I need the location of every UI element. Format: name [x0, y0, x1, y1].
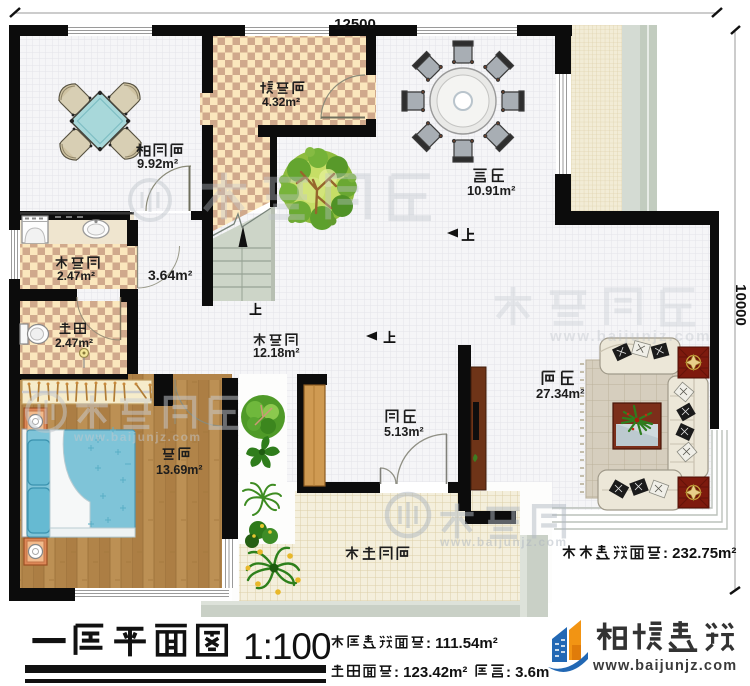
svg-text:3.64m²: 3.64m²	[148, 267, 193, 283]
svg-text:27.34m²: 27.34m²	[536, 386, 585, 401]
svg-text:www.baijunjz.com: www.baijunjz.com	[73, 430, 202, 444]
svg-text:12.18m²: 12.18m²	[253, 346, 300, 360]
svg-text:: 3.6m: : 3.6m	[506, 664, 549, 681]
svg-text:: 232.75m²: : 232.75m²	[663, 545, 736, 562]
svg-text:4.32m²: 4.32m²	[262, 95, 300, 109]
svg-text:9.92m²: 9.92m²	[137, 156, 179, 171]
svg-text:1:100: 1:100	[243, 626, 331, 667]
svg-text:www.baijunjz.com: www.baijunjz.com	[549, 328, 711, 345]
svg-text:5.13m²: 5.13m²	[384, 425, 424, 439]
svg-text:12500: 12500	[334, 16, 376, 33]
svg-text:13.69m²: 13.69m²	[156, 463, 203, 477]
svg-text:www.baijunjz.com: www.baijunjz.com	[439, 535, 568, 549]
svg-text:: 123.42m²: : 123.42m²	[394, 664, 467, 681]
svg-text:2.47m²: 2.47m²	[57, 269, 95, 283]
svg-text:10.91m²: 10.91m²	[467, 183, 516, 198]
svg-text:: 111.54m²: : 111.54m²	[426, 635, 498, 652]
svg-text:www.baijunjz.com: www.baijunjz.com	[592, 658, 737, 674]
svg-text:2.47m²: 2.47m²	[55, 336, 93, 350]
svg-text:10000: 10000	[732, 284, 749, 326]
